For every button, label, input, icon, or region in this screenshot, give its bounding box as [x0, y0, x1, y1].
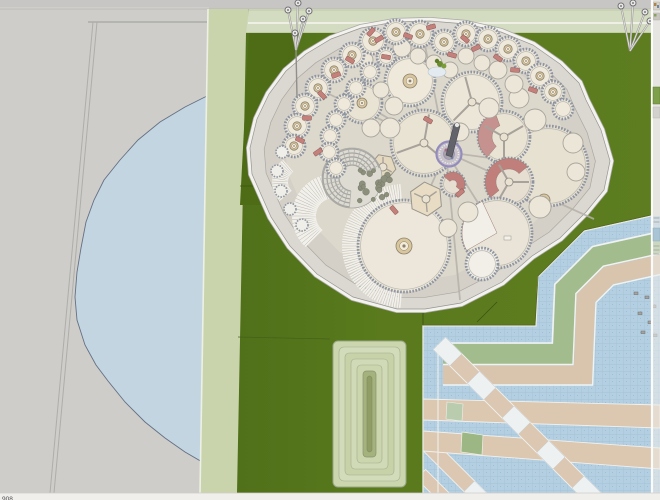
svg-text:908: 908: [2, 496, 13, 500]
